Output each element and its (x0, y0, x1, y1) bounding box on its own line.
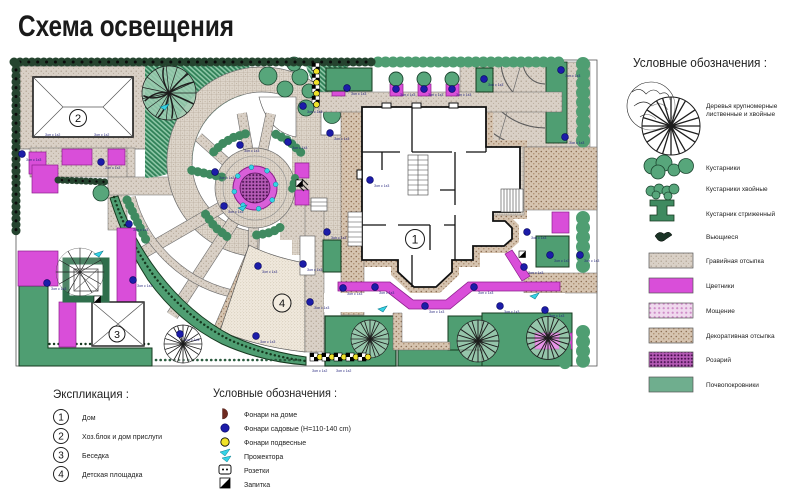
svg-text:Зон с 1х2: Зон с 1х2 (312, 369, 327, 373)
svg-text:Зон с 1х3: Зон с 1х3 (429, 310, 444, 314)
svg-text:4: 4 (58, 470, 64, 481)
svg-text:Зон с 1х3: Зон с 1х3 (26, 158, 41, 162)
svg-text:Вьющиеся: Вьющиеся (706, 234, 738, 241)
svg-text:Зон с 1х3: Зон с 1х3 (228, 210, 243, 214)
svg-text:Фонари садовые (H=110-140 cm): Фонари садовые (H=110-140 cm) (244, 426, 351, 433)
svg-text:Зон с 1х3: Зон с 1х3 (51, 287, 66, 291)
svg-text:Зон с 1х3: Зон с 1х3 (334, 137, 349, 141)
svg-text:Розарий: Розарий (706, 356, 731, 364)
svg-text:Мощение: Мощение (706, 308, 735, 315)
svg-text:Зон с 1х3: Зон с 1х3 (400, 93, 415, 97)
svg-text:Зон с 1х3: Зон с 1х3 (307, 110, 322, 114)
svg-text:Зон с 1х3: Зон с 1х3 (244, 149, 259, 153)
svg-text:Зон с 1х2: Зон с 1х2 (336, 369, 351, 373)
svg-text:Зон с 1х3: Зон с 1х3 (554, 259, 569, 263)
svg-text:Зон с 1х3: Зон с 1х3 (428, 93, 443, 97)
svg-text:Зон с 1х3: Зон с 1х3 (133, 228, 148, 232)
svg-text:Прожектора: Прожектора (244, 454, 283, 461)
svg-text:Зон с 1х3: Зон с 1х3 (219, 176, 234, 180)
svg-text:Зон с 1х3: Зон с 1х3 (262, 270, 277, 274)
svg-text:Экспликация :: Экспликация : (53, 387, 129, 401)
svg-text:Условные обозначения :: Условные обозначения : (213, 386, 337, 400)
svg-text:Зон с 1х3: Зон с 1х3 (374, 184, 389, 188)
svg-text:Условные обозначения :: Условные обозначения : (633, 55, 767, 70)
svg-text:Зон с 1х3: Зон с 1х3 (351, 92, 366, 96)
svg-text:Зон с 1х2: Зон с 1х2 (45, 133, 60, 137)
svg-text:Зон с 1х3: Зон с 1х3 (105, 166, 120, 170)
svg-text:Зон с 1х3: Зон с 1х3 (504, 310, 519, 314)
svg-text:Фонари на доме: Фонари на доме (244, 412, 297, 419)
svg-text:2: 2 (58, 432, 64, 443)
svg-text:Зон с 1х3: Зон с 1х3 (531, 236, 546, 240)
svg-text:Запитка: Запитка (244, 482, 270, 489)
svg-text:Зон с 1х3: Зон с 1х3 (584, 259, 599, 263)
svg-text:1: 1 (412, 233, 419, 247)
svg-text:Зон с 1х3: Зон с 1х3 (379, 291, 394, 295)
svg-text:Розетки: Розетки (244, 468, 269, 475)
svg-text:Зон с 1х3: Зон с 1х3 (565, 74, 580, 78)
svg-text:Зон с 1х3: Зон с 1х3 (137, 284, 152, 288)
svg-text:Почвопокровники: Почвопокровники (706, 382, 759, 389)
svg-text:Зон с 1х3: Зон с 1х3 (549, 314, 564, 318)
svg-text:Деревья крупномерные: Деревья крупномерные (706, 103, 778, 110)
svg-text:Зон с 1х3: Зон с 1х3 (478, 291, 493, 295)
svg-text:Цветники: Цветники (706, 283, 735, 290)
svg-text:Зон с 1х3: Зон с 1х3 (528, 271, 543, 275)
svg-text:3: 3 (58, 451, 64, 462)
svg-text:Зон с 1х3: Зон с 1х3 (184, 338, 199, 342)
svg-text:Схема освещения: Схема освещения (18, 10, 234, 43)
svg-text:Зон с 1х2: Зон с 1х2 (94, 133, 109, 137)
svg-text:Детская площадка: Детская площадка (82, 472, 143, 479)
svg-text:Зон с 1х3: Зон с 1х3 (569, 141, 584, 145)
svg-text:Беседка: Беседка (82, 453, 109, 460)
svg-text:1: 1 (58, 413, 64, 424)
svg-text:Гравийная отсыпка: Гравийная отсыпка (706, 257, 764, 265)
svg-text:4: 4 (279, 298, 285, 310)
svg-text:Зон с 1х3: Зон с 1х3 (307, 268, 322, 272)
svg-text:Зон с 1х3: Зон с 1х3 (488, 83, 503, 87)
svg-text:Зон с 1х3: Зон с 1х3 (314, 306, 329, 310)
svg-text:Зон с 1х3: Зон с 1х3 (260, 340, 275, 344)
svg-text:Кустарники хвойные: Кустарники хвойные (706, 185, 768, 193)
svg-text:Хоз.блок и дом прислуги: Хоз.блок и дом прислуги (82, 433, 162, 441)
svg-text:Зон с 1х3: Зон с 1х3 (347, 292, 362, 296)
svg-text:Кустарник стриженный: Кустарник стриженный (706, 210, 776, 218)
svg-text:Зон с 1х3: Зон с 1х3 (456, 93, 471, 97)
svg-text:лиственные и хвойные: лиственные и хвойные (706, 110, 775, 118)
svg-text:3: 3 (114, 329, 120, 341)
svg-text:Зон с 1х3: Зон с 1х3 (331, 236, 346, 240)
svg-text:Фонари подвесные: Фонари подвесные (244, 440, 306, 447)
svg-text:Дом: Дом (82, 415, 96, 422)
svg-text:Декоративная отсыпка: Декоративная отсыпка (706, 333, 775, 340)
svg-text:Кустарники: Кустарники (706, 165, 740, 172)
svg-text:Зон с 1х3: Зон с 1х3 (292, 146, 307, 150)
svg-text:2: 2 (75, 113, 81, 125)
